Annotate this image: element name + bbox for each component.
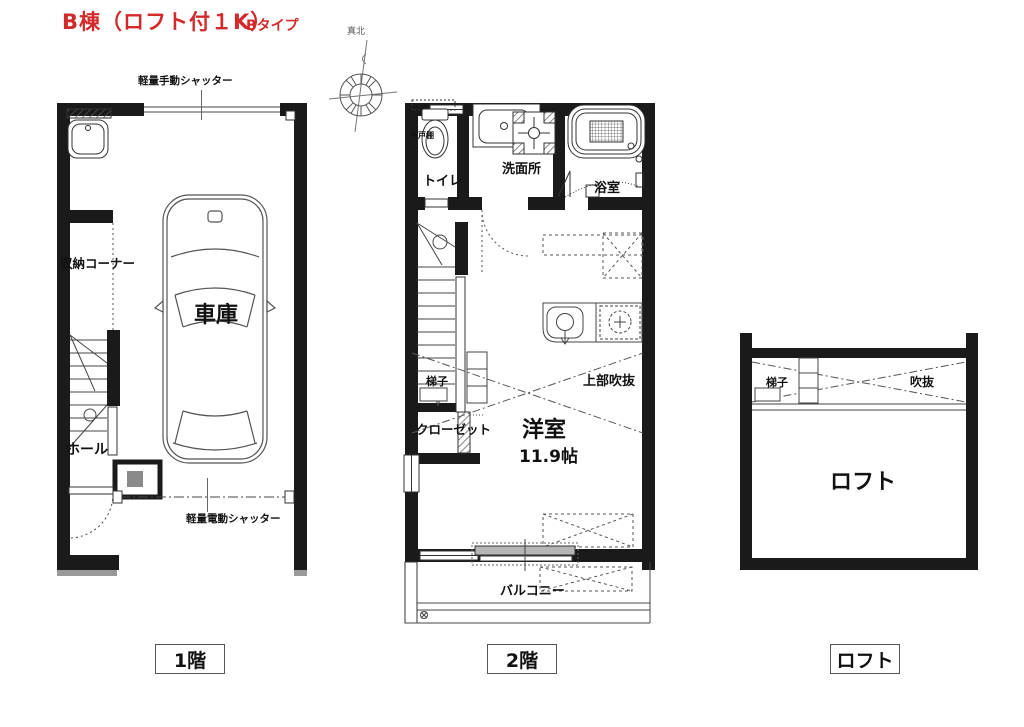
floor1-hall-label: ホール — [66, 443, 108, 457]
page-title: B棟（ロフト付１K） — [62, 12, 272, 33]
floorplan-page: B棟（ロフト付１K） Bタイプ 真北 — [0, 0, 1024, 727]
utility-sink — [67, 109, 111, 158]
entry-door — [69, 487, 113, 538]
floor2-balcony-label: バルコニー — [500, 585, 565, 598]
side-window — [404, 455, 419, 492]
floor2-upper-void-label: 上部吹抜 — [583, 375, 635, 388]
floor1-shutter-top-label: 軽量手動シャッター — [138, 76, 233, 87]
floor2-toilet-label: トイレ — [423, 175, 462, 188]
floor2-ladder-label: 梯子 — [426, 376, 448, 387]
page-subtitle: Bタイプ — [246, 19, 299, 33]
kitchen-counter — [543, 303, 642, 344]
floor1-tag: 1階 — [155, 644, 225, 674]
loft-walls — [740, 333, 978, 570]
balcony-window — [420, 539, 578, 571]
floor2-room-label: 洋室 — [522, 420, 566, 442]
car — [155, 195, 275, 463]
floor2-room-size-label: 11.9帖 — [519, 449, 578, 466]
floor2-bathroom-label: 浴室 — [594, 182, 620, 195]
shutter-tick-bottom — [207, 478, 208, 512]
floor2-closet-label: クローゼット — [416, 424, 491, 437]
loft-void-label: 吹抜 — [910, 376, 934, 388]
loft-plan — [735, 320, 990, 580]
washroom-entry-arc — [482, 210, 528, 273]
floor1-garage-label: 車庫 — [194, 305, 238, 327]
floor1-storage-label: 収納コーナー — [60, 258, 135, 271]
shutter-tick-top — [201, 90, 202, 120]
floor1-shutter-bottom-label: 軽量電動シャッター — [186, 514, 281, 525]
compass-icon — [322, 24, 404, 136]
floor2-tag: 2階 — [487, 644, 557, 674]
loft-ladder-label: 梯子 — [766, 377, 788, 388]
loft-room-label: ロフト — [830, 472, 896, 494]
dashed-overheads — [543, 233, 643, 547]
floor1-plan — [55, 95, 310, 580]
washer-pan — [513, 112, 555, 154]
loft-tag: ロフト — [830, 644, 900, 674]
floor2-hanging-cupboard-label: 吊戸棚 — [410, 132, 434, 140]
floor2-washroom-label: 洗面所 — [502, 163, 541, 176]
